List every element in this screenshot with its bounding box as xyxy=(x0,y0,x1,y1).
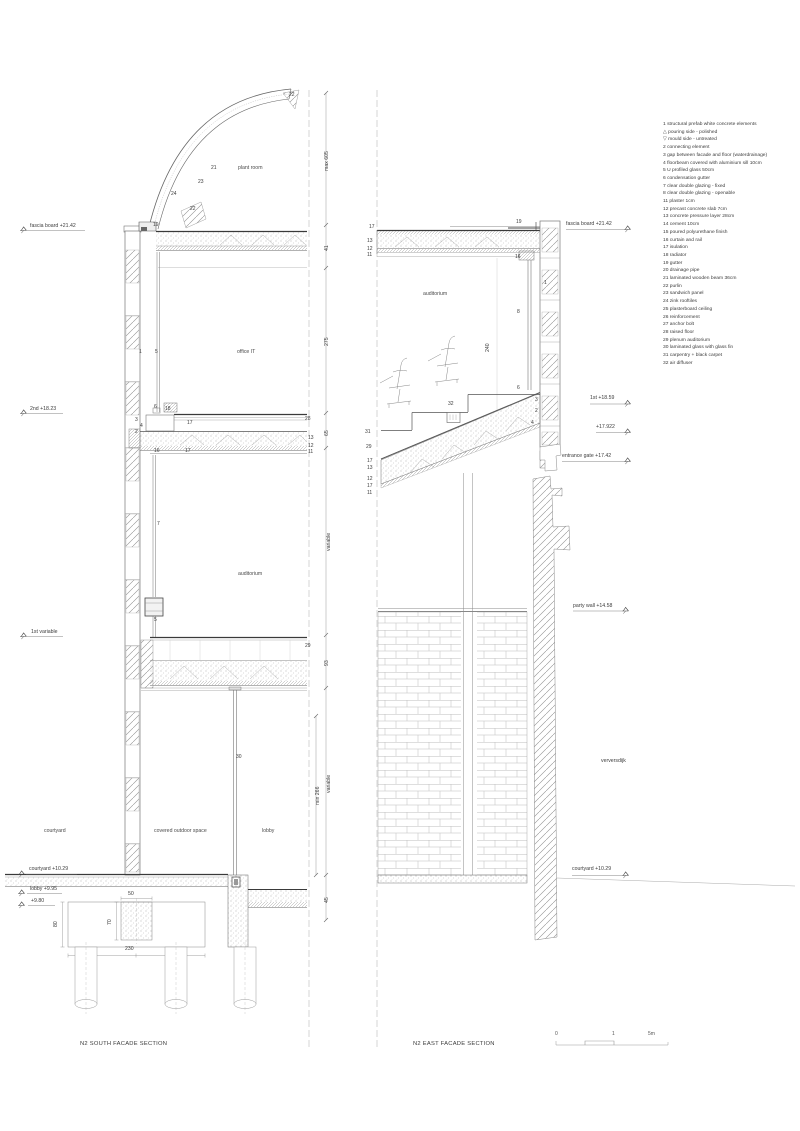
legend-item: 19 gutter xyxy=(663,260,800,268)
legend-item: 25 plasterboard ceiling xyxy=(663,306,800,314)
room-label: plant room xyxy=(238,165,263,171)
south-office-glazing xyxy=(157,252,160,412)
callout-number: 2 xyxy=(135,429,138,435)
scale-label: 1 xyxy=(612,1031,615,1037)
level-label: verversdijk xyxy=(601,758,626,764)
level-label: lobby +9.95 xyxy=(30,886,57,892)
legend: 1 structural prefab white concrete eleme… xyxy=(663,121,800,368)
room-label: courtyard xyxy=(44,828,66,834)
auditorium-seat xyxy=(380,358,411,408)
east-section-title: N2 EAST FACADE SECTION xyxy=(413,1041,495,1047)
south-2nd-floor-slab xyxy=(129,403,307,454)
callout-number: 11 xyxy=(367,490,372,496)
dimension-label: 240 xyxy=(485,343,491,352)
callout-number: 1 xyxy=(544,280,547,286)
callout-number: 8 xyxy=(517,309,520,315)
legend-item: 16 curtain and rail xyxy=(663,237,800,245)
south-foundation xyxy=(61,897,257,1015)
legend-item: 32 air diffuser xyxy=(663,360,800,368)
callout-number: 17 xyxy=(187,420,193,426)
dimension-label: 41 xyxy=(324,245,330,251)
dimension-label: min 266 xyxy=(315,787,321,805)
level-label: fascia board +21.42 xyxy=(566,221,612,227)
dimension-label: 45 xyxy=(324,897,330,903)
room-label: lobby xyxy=(262,828,274,834)
south-roof-slab xyxy=(156,232,307,268)
room-label: office IT xyxy=(237,349,255,355)
callout-number: 21 xyxy=(211,165,217,171)
callout-number: 5 xyxy=(154,617,157,623)
callout-number: 22 xyxy=(289,92,295,98)
callout-number: 31 xyxy=(365,429,371,435)
legend-item: 29 plenum auditorium xyxy=(663,337,800,345)
legend-item: 26 reinforcement xyxy=(663,314,800,322)
scale-label: 5m xyxy=(648,1031,655,1037)
callout-number: 22 xyxy=(190,206,196,212)
dimension-label: 275 xyxy=(324,337,330,346)
callout-number: 17 xyxy=(367,483,373,489)
legend-item: 31 carpentry + black carpet xyxy=(663,352,800,360)
auditorium-seat xyxy=(428,336,459,386)
legend-item: 5 U profiled glass 50cm xyxy=(663,167,800,175)
legend-item: 6 condensation gutter xyxy=(663,175,800,183)
east-raked-floor xyxy=(381,393,540,489)
dimension-label: 65 xyxy=(324,430,330,436)
legend-item: 17 isulation xyxy=(663,244,800,252)
level-label: courtyard +10.29 xyxy=(29,866,68,872)
level-label: +17.922 xyxy=(596,424,615,430)
room-label: covered outdoor space xyxy=(154,828,207,834)
legend-item: 11 plaster 1cm xyxy=(663,198,800,206)
room-label: auditorium xyxy=(238,571,262,577)
ground-line xyxy=(557,878,795,886)
callout-number: 19 xyxy=(153,222,159,228)
dimension-label: 70 xyxy=(107,919,113,925)
callout-number: 23 xyxy=(198,179,204,185)
legend-item: 13 concrete pressure layer 28cm xyxy=(663,213,800,221)
legend-item: 23 sandwich panel xyxy=(663,290,800,298)
level-label: 1st variable xyxy=(31,629,58,635)
south-1st-floor-slab xyxy=(141,638,307,691)
legend-item: 22 purlin xyxy=(663,283,800,291)
callout-number: 13 xyxy=(367,238,373,244)
callout-number: 3 xyxy=(535,397,538,403)
callout-number: 29 xyxy=(366,444,372,450)
callout-number: 16 xyxy=(515,254,521,260)
east-level-markers xyxy=(562,226,631,878)
south-curved-roof xyxy=(139,89,299,231)
callout-number: 30 xyxy=(236,754,242,760)
east-party-wall xyxy=(533,444,570,940)
level-label: 2nd +18.23 xyxy=(30,406,56,412)
callout-number: 11 xyxy=(308,449,313,455)
dimension-label: variable xyxy=(326,533,332,551)
level-label: fascia board +21.42 xyxy=(30,223,76,229)
south-glass-fin xyxy=(229,687,241,875)
callout-number: 1 xyxy=(139,349,142,355)
legend-item: 7 clear double glazing - fixed xyxy=(663,183,800,191)
east-brick-wall xyxy=(378,473,795,886)
room-label: auditorium xyxy=(423,291,447,297)
east-glazing xyxy=(528,260,531,390)
drawing-sheet: 1 structural prefab white concrete eleme… xyxy=(0,0,800,1131)
callout-number: 13 xyxy=(367,465,373,471)
legend-item: 1 structural prefab white concrete eleme… xyxy=(663,121,800,129)
south-section-title: N2 SOUTH FACADE SECTION xyxy=(80,1041,167,1047)
legend-item: △ pouring side - polished xyxy=(663,129,800,137)
dimension-label: variable xyxy=(326,775,332,793)
callout-number: 5 xyxy=(155,349,158,355)
callout-number: 18 xyxy=(165,406,171,412)
callout-number: 29 xyxy=(305,643,311,649)
south-precast-wall xyxy=(124,226,141,875)
level-label: entrance gate +17.42 xyxy=(562,453,611,459)
callout-number: 6 xyxy=(517,385,520,391)
callout-number: 28 xyxy=(305,416,311,422)
level-label: party wall +14.58 xyxy=(573,603,612,609)
legend-item: 14 cement 10cm xyxy=(663,221,800,229)
legend-item: 12 precast concrete slab 7cm xyxy=(663,206,800,214)
level-label: 1st +18.59 xyxy=(590,395,614,401)
callout-number: 4 xyxy=(140,423,143,429)
dimension-label: 93 xyxy=(324,660,330,666)
callout-number: 24 xyxy=(171,191,177,197)
callout-number: 17 xyxy=(185,448,191,454)
callout-number: 19 xyxy=(516,219,522,225)
callout-number: 12 xyxy=(367,476,373,482)
legend-item: 24 zink rooftiles xyxy=(663,298,800,306)
dimension-label: 80 xyxy=(53,921,59,927)
legend-item: 8 clear double glazing - openable xyxy=(663,190,800,198)
legend-item: ▽ mould side - untreated xyxy=(663,136,800,144)
south-level-markers xyxy=(18,227,85,908)
legend-item: 15 poured polyurethane finish xyxy=(663,229,800,237)
dimension-label: 230 xyxy=(125,946,134,952)
legend-item: 21 laminated wooden beam 36cm xyxy=(663,275,800,283)
legend-item: 30 laminated glass with glass fin xyxy=(663,344,800,352)
south-auditorium-glazing xyxy=(145,455,163,637)
callout-number: 11 xyxy=(367,252,372,258)
legend-item: 18 radiator xyxy=(663,252,800,260)
callout-number: 3 xyxy=(135,417,138,423)
callout-number: 17 xyxy=(367,458,373,464)
callout-number: 17 xyxy=(369,224,375,230)
dimension-label: 50 xyxy=(128,891,134,897)
east-precast-wall xyxy=(540,221,560,468)
legend-item: 2 connecting element xyxy=(663,144,800,152)
callout-number: 6 xyxy=(154,404,157,410)
callout-number: 32 xyxy=(448,401,454,407)
scale-label: 0 xyxy=(555,1031,558,1037)
legend-item: 3 gap between facade and floor (waterdra… xyxy=(663,152,800,160)
callout-number: 2 xyxy=(535,408,538,414)
callout-number: 7 xyxy=(157,521,160,527)
level-label: courtyard +10.29 xyxy=(572,866,611,872)
legend-item: 28 raised floor xyxy=(663,329,800,337)
callout-number: 4 xyxy=(531,420,534,426)
scale-bar xyxy=(556,1041,668,1045)
callout-number: 16 xyxy=(154,448,160,454)
level-label: +9.80 xyxy=(31,898,44,904)
legend-item: 20 drainage pipe xyxy=(663,267,800,275)
legend-item: 27 anchor bolt xyxy=(663,321,800,329)
callout-number: 13 xyxy=(308,435,314,441)
dimension-label: max 605 xyxy=(324,151,330,171)
south-facade-section-drawing xyxy=(5,89,328,1050)
legend-item: 4 floorbeam covered with aluminium sill … xyxy=(663,160,800,168)
